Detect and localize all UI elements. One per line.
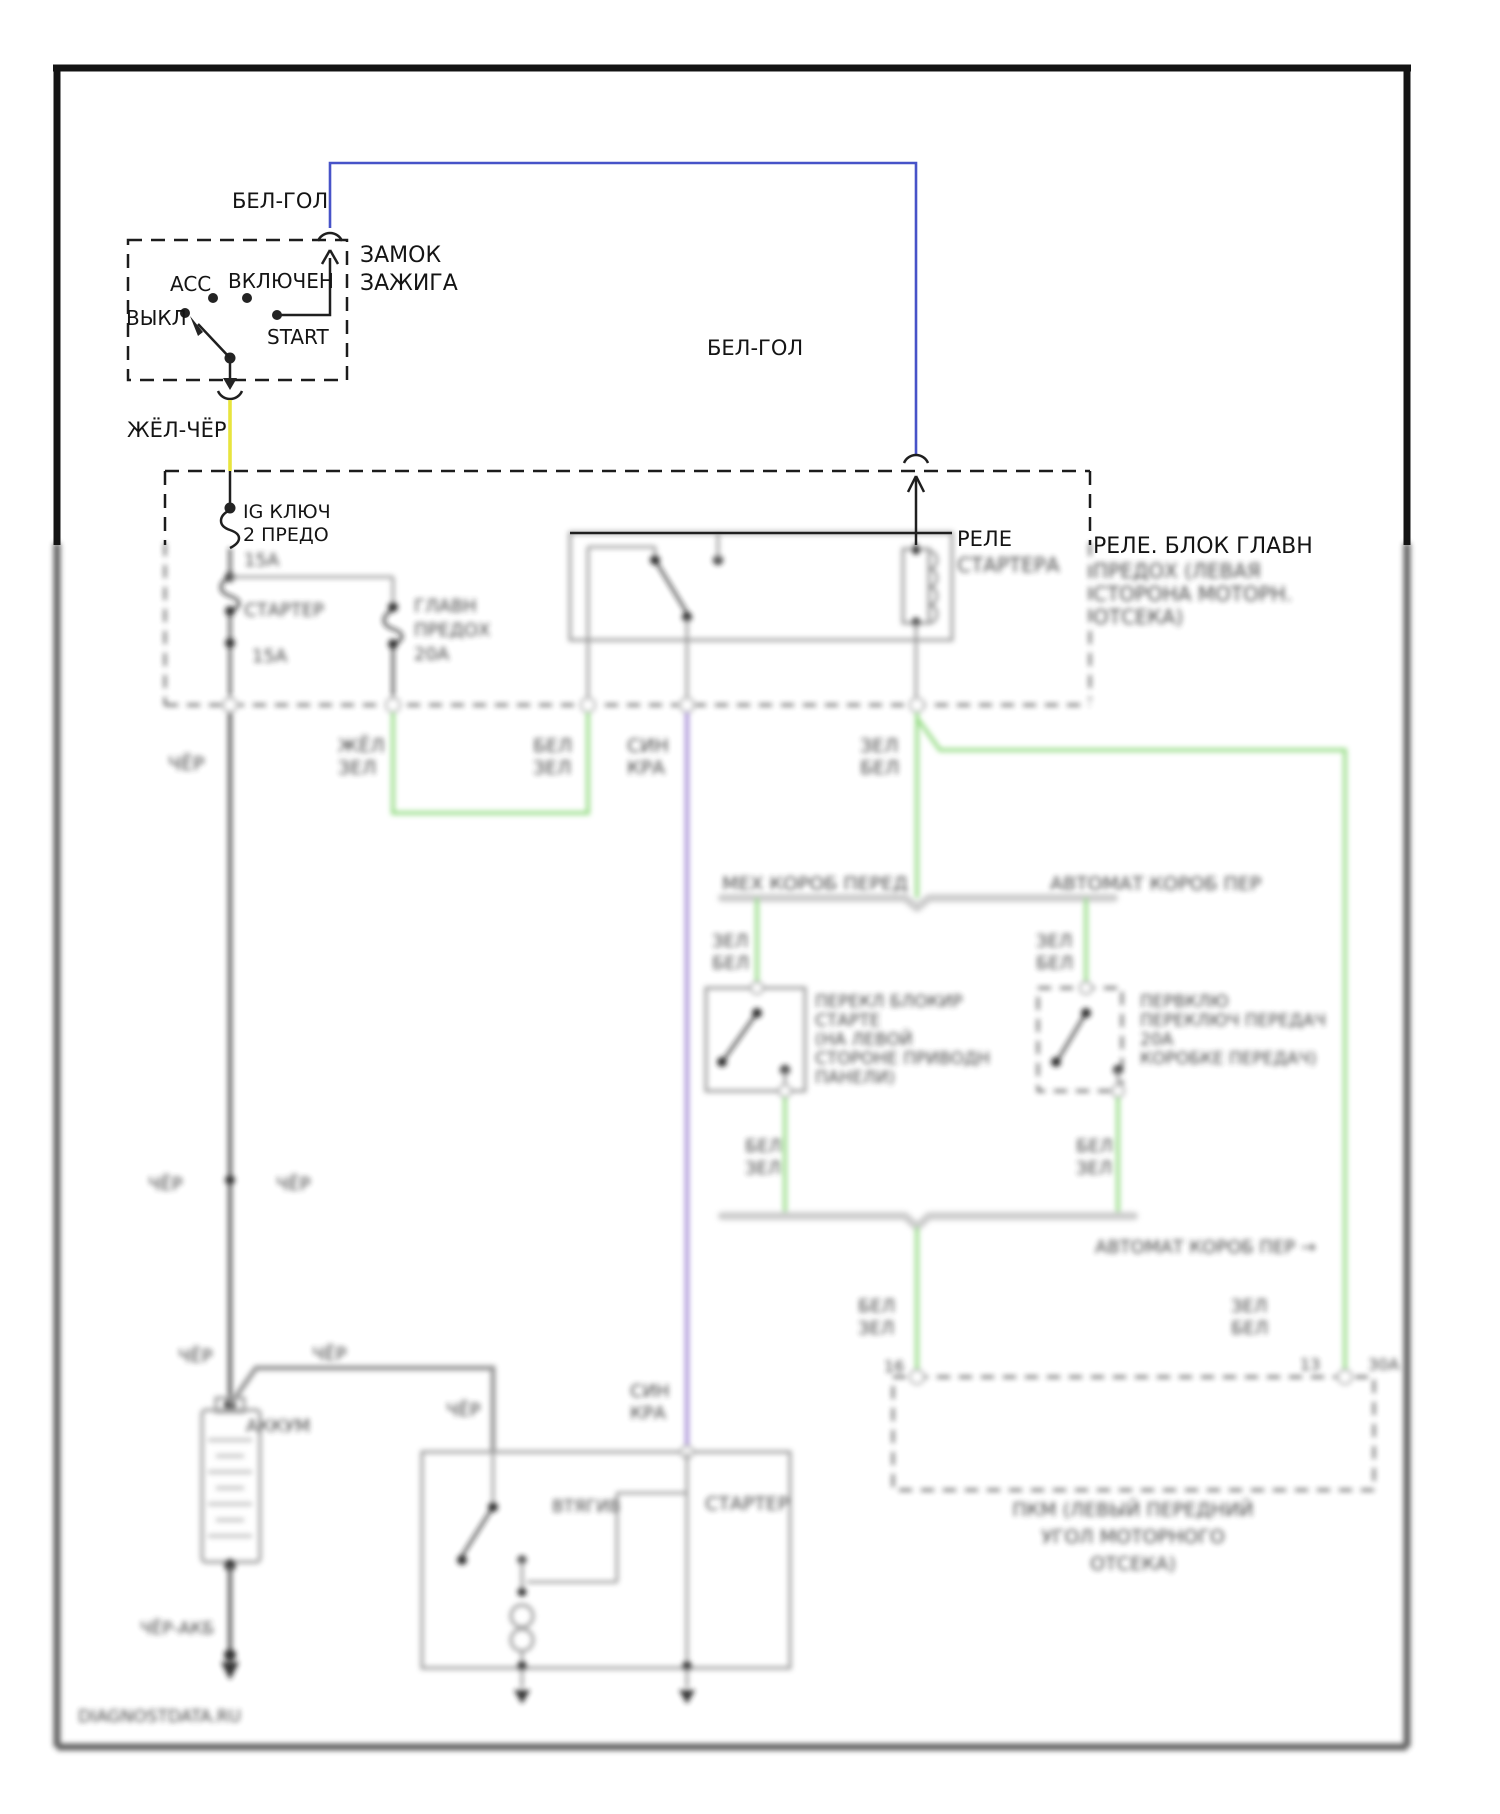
wire-label-bel-zel-center-1: БЕЛ — [858, 1296, 895, 1317]
wire-label-cher-akb: ЧЁР-АКБ — [140, 1618, 214, 1639]
wire-label-zel-bel-right-1: ЗЕЛ — [1036, 931, 1072, 952]
wire-label-cher-splice-r: ЧЁР — [276, 1174, 311, 1195]
wire-label-cher-batt1: ЧЁР — [178, 1346, 213, 1367]
svg-text:ПЕРЕКЛ БЛОКИР: ПЕРЕКЛ БЛОКИР — [815, 992, 963, 1012]
wire-label-bel-gol-right: БЕЛ-ГОЛ — [707, 336, 803, 360]
wire-label-zhel-zel-1: ЖЁЛ — [338, 734, 385, 757]
page-frame — [53, 65, 1411, 545]
fuse3-name1-label: ГЛАВН — [414, 596, 477, 617]
wire-label-zel-bel-pcm-1: ЗЕЛ — [1231, 1296, 1267, 1317]
svg-text:КОРОБКЕ ПЕРЕДАЧ): КОРОБКЕ ПЕРЕДАЧ) — [1140, 1049, 1317, 1069]
fuse-block-title-label: РЕЛЕ. БЛОК ГЛАВН — [1093, 534, 1313, 559]
ignition-title-1: ЗАМОК — [360, 243, 441, 268]
auto-trans-ref: АВТОМАТ КОРОБ ПЕР → — [1095, 1237, 1316, 1258]
fuse1-rating-label: 15А — [244, 550, 280, 571]
wire-label-cher-main: ЧЁР — [168, 752, 205, 775]
wire-label-bel-zel-center-2: ЗЕЛ — [858, 1318, 894, 1339]
wire-label-cher-starter: ЧЁР — [446, 1400, 481, 1421]
svg-text:(НА ЛЕВОЙ: (НА ЛЕВОЙ — [815, 1028, 913, 1050]
fuse-chain-ig — [221, 548, 402, 705]
pcm-pin-right-rating: 30А — [1368, 1355, 1399, 1374]
pcm-pin-left: 16 — [884, 1357, 904, 1376]
battery-label: АККУМ — [246, 1416, 310, 1437]
wire-label-bel-zel-2: ЗЕЛ — [533, 757, 571, 779]
wire-label-zel-bel-right-2: БЕЛ — [1036, 953, 1073, 974]
ignition-title-2: ЗАЖИГА — [360, 271, 458, 296]
wire-black-battery-feed — [224, 712, 493, 1452]
auto-trans-header: АВТОМАТ КОРОБ ПЕР — [1050, 873, 1261, 895]
pcm-caption: ПКМ (ЛЕВЫЙ ПЕРЕДНИЙ УГОЛ МОТОРНОГО ОТСЕК… — [1012, 1498, 1253, 1575]
wire-label-zel-bel-pcm-2: БЕЛ — [1231, 1318, 1268, 1339]
fuse3-name2-label: ПРЕДОХ — [414, 620, 490, 641]
fuse-block-sub1-label: ПРЕДОХ (ЛЕВАЯ — [1093, 559, 1261, 583]
starter-label: СТАРТЕР — [705, 1493, 789, 1515]
wire-label-cher-splice-l: ЧЁР — [148, 1174, 183, 1195]
wire-bel-gol — [330, 163, 916, 455]
auto-switch-caption: ПЕРВКЛЮ ПЕРЕКЛЮЧ ПЕРЕДАЧ 20А КОРОБКЕ ПЕР… — [1140, 992, 1326, 1069]
pcm-box — [893, 1370, 1374, 1490]
svg-text:ОТСЕКА): ОТСЕКА) — [1090, 1553, 1176, 1575]
wire-label-cher-batt2: ЧЁР — [312, 1344, 347, 1365]
wire-label-zhel-zel-2: ЗЕЛ — [338, 757, 376, 779]
ig-feed-label-1: IG КЛЮЧ — [243, 501, 331, 523]
starter-solenoid-label: ВТЯГИВ — [552, 1497, 621, 1517]
svg-text:ПЕРВКЛЮ: ПЕРВКЛЮ — [1140, 992, 1229, 1012]
fuse-block-sub2-label: СТОРОНА МОТОРН. — [1093, 582, 1292, 606]
wire-label-bel-zel-right-1: БЕЛ — [1076, 1136, 1113, 1157]
wire-label-zel-bel-left-2: БЕЛ — [712, 953, 749, 974]
ignition-pos-start: START — [267, 325, 329, 349]
ignition-pos-off: ВЫКЛ — [126, 306, 187, 330]
wire-label-bel-zel-right-2: ЗЕЛ — [1076, 1158, 1112, 1179]
relay-subtitle-label: СТАРТЕРА — [957, 553, 1060, 577]
relay-title-label: РЕЛЕ — [957, 527, 1012, 551]
wire-label-sin-kra-2: КРА — [627, 757, 665, 779]
wire-label-bel-zel-left-1: БЕЛ — [745, 1136, 782, 1157]
fuse2-rating-label: 15А — [252, 646, 288, 667]
fuse2-name-label: СТАРТЕР — [244, 600, 324, 621]
wire-label-bel-zel-1: БЕЛ — [533, 735, 572, 757]
wire-label-sin-kra-1: СИН — [627, 735, 669, 757]
blurred-region: 15А СТАРТЕР 15А ГЛАВН ПРЕДОХ 20А СТАРТЕР… — [57, 533, 1407, 1747]
ignition-pos-on: ВКЛЮЧЕН — [228, 269, 334, 293]
page-frame-soft — [57, 543, 1407, 1747]
fuse3-rating-label: 20А — [414, 644, 450, 665]
svg-text:СТОРОНЕ ПРИВОДН: СТОРОНЕ ПРИВОДН — [815, 1049, 990, 1069]
wire-label-zhel-cher: ЖЁЛ-ЧЁР — [127, 417, 227, 442]
pcm-pin-right: 13 — [1300, 1355, 1320, 1374]
ig-feed-label-2: 2 ПРЕДО — [243, 524, 329, 546]
wire-label-zel-bel-left-1: ЗЕЛ — [712, 931, 748, 952]
lower-bus — [722, 1216, 1134, 1227]
ignition-pos-acc: ACC — [170, 272, 211, 296]
wire-label-bel-zel-left-2: ЗЕЛ — [745, 1158, 781, 1179]
watermark: DIAGNOSTDATA.RU — [78, 1707, 241, 1727]
wire-green-coil-out — [917, 712, 1345, 1380]
upper-bus — [722, 898, 1114, 908]
ig-feed — [221, 471, 239, 548]
starter-box — [422, 1446, 790, 1704]
manual-trans-header: МЕХ КОРОБ ПЕРЕД — [722, 873, 908, 895]
wiring-diagram: 15А СТАРТЕР 15А ГЛАВН ПРЕДОХ 20А СТАРТЕР… — [0, 0, 1500, 1814]
svg-text:ПЕРЕКЛЮЧ ПЕРЕДАЧ: ПЕРЕКЛЮЧ ПЕРЕДАЧ — [1140, 1011, 1326, 1031]
wire-label-bel-gol-top: БЕЛ-ГОЛ — [232, 189, 328, 213]
sharp-region: БЕЛ-ГОЛ БЕЛ-ГОЛ ACC ВКЛЮЧЕН ВЫКЛ START З… — [53, 65, 1411, 559]
svg-text:ПАНЕЛИ): ПАНЕЛИ) — [815, 1068, 895, 1088]
wire-label-zel-bel-2: БЕЛ — [860, 757, 899, 779]
fuse-block-sub3-label: ОТСЕКА) — [1093, 605, 1183, 629]
svg-text:СТАРТЕ: СТАРТЕ — [815, 1011, 880, 1031]
svg-text:ПКМ (ЛЕВЫЙ ПЕРЕДНИЙ: ПКМ (ЛЕВЫЙ ПЕРЕДНИЙ — [1012, 1498, 1253, 1521]
wire-label-sin-kra2-2: КРА — [630, 1403, 667, 1424]
starter-relay-box — [570, 533, 952, 705]
wire-label-zel-bel-1: ЗЕЛ — [860, 735, 898, 757]
svg-text:20А: 20А — [1140, 1030, 1174, 1050]
wire-label-sin-kra2-1: СИН — [630, 1381, 670, 1402]
manual-switch-caption: ПЕРЕКЛ БЛОКИР СТАРТЕ (НА ЛЕВОЙ СТОРОНЕ П… — [815, 992, 990, 1088]
svg-text:УГОЛ МОТОРНОГО: УГОЛ МОТОРНОГО — [1041, 1526, 1225, 1548]
